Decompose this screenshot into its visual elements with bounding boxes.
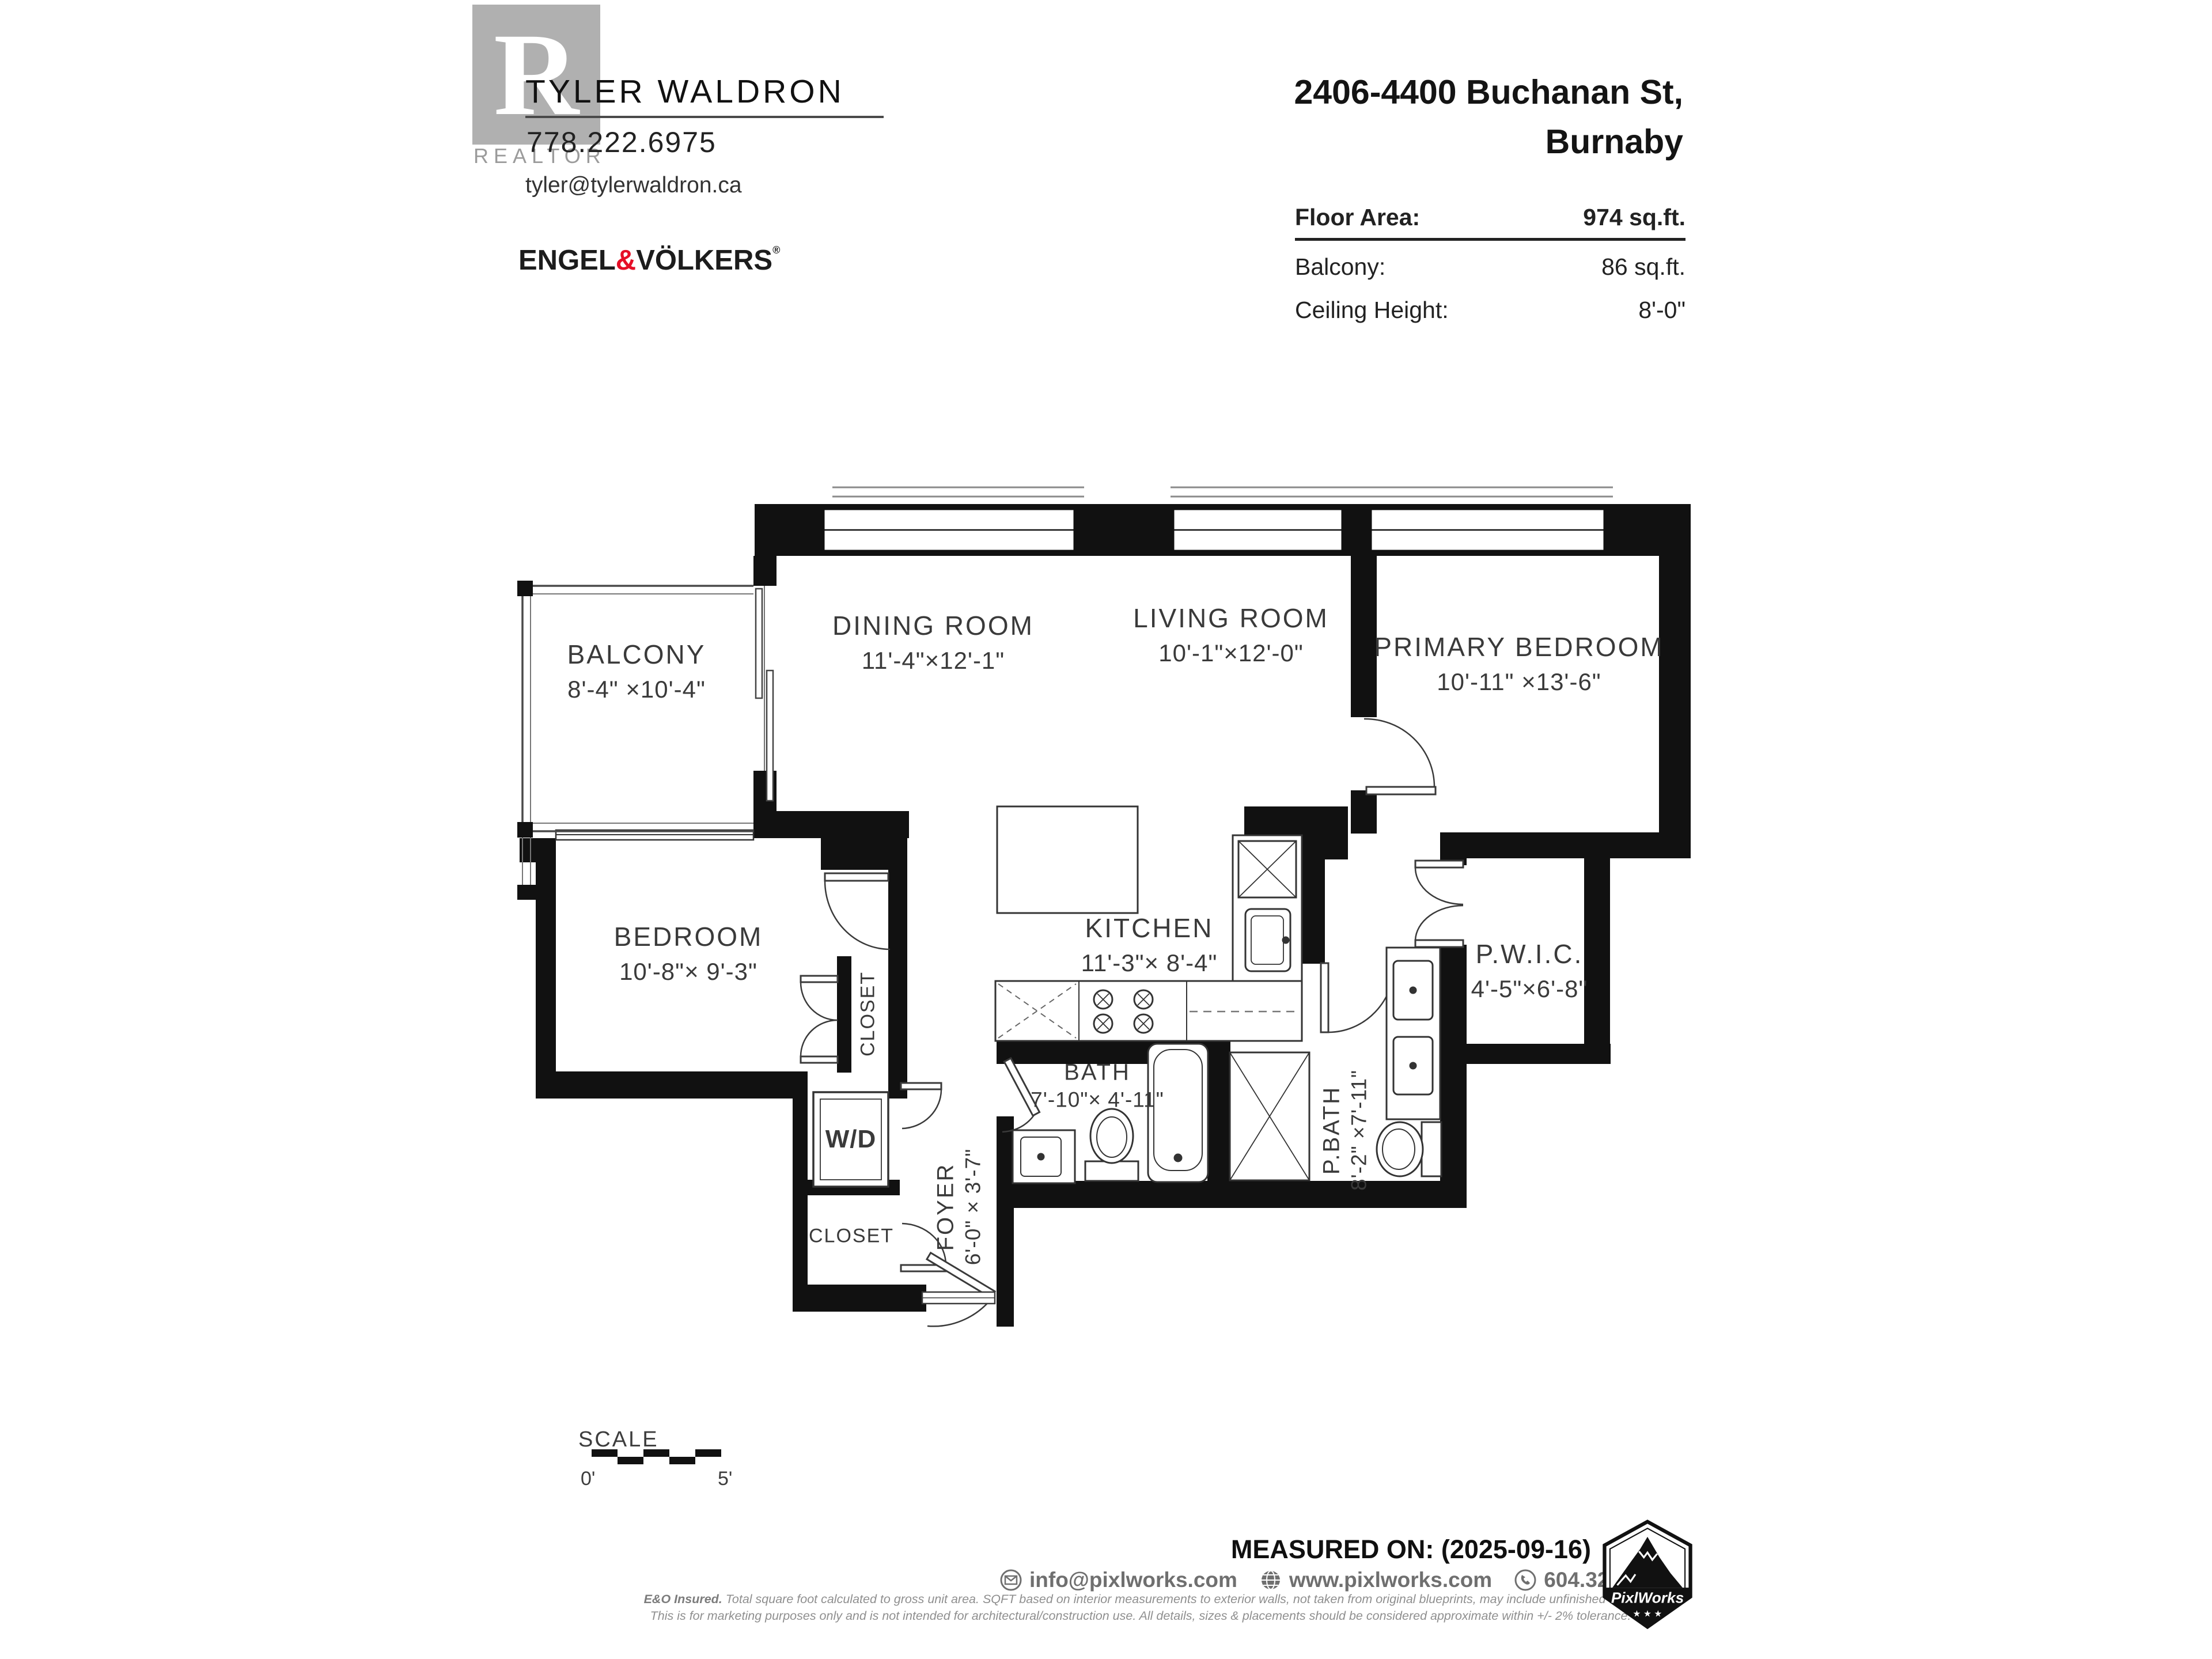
brokerage-registered: ® bbox=[772, 244, 780, 256]
room-label-bedroom: BEDROOM 10'-8"× 9'-3" bbox=[614, 921, 763, 986]
globe-icon bbox=[1259, 1569, 1282, 1592]
agent-email: tyler@tylerwaldron.ca bbox=[525, 173, 742, 198]
room-label-living: LIVING ROOM 10'-1"×12'-0" bbox=[1133, 603, 1329, 667]
room-label-pwic: P.W.I.C. 4'-5"×6'-8" bbox=[1471, 938, 1588, 1003]
scale-title: SCALE bbox=[578, 1427, 659, 1452]
address-line-1: 2406-4400 Buchanan St, bbox=[1210, 68, 1683, 118]
property-address: 2406-4400 Buchanan St, Burnaby bbox=[1210, 68, 1683, 166]
room-label-pbath: P.BATH 8'-2" ×7'-11" bbox=[1319, 1070, 1372, 1191]
floorplan-drawing bbox=[0, 0, 2212, 1659]
room-dims: 7'-10"× 4'-11" bbox=[1031, 1088, 1164, 1112]
room-name: DINING ROOM bbox=[832, 610, 1034, 641]
room-name: BEDROOM bbox=[614, 921, 763, 952]
brokerage-ampersand: & bbox=[616, 245, 636, 276]
room-label-primary-bedroom: PRIMARY BEDROOM 10'-11" ×13'-6" bbox=[1374, 631, 1664, 696]
room-dims: 10'-11" ×13'-6" bbox=[1374, 668, 1664, 696]
agent-name-rule bbox=[525, 116, 884, 118]
room-name: P.W.I.C. bbox=[1471, 938, 1588, 969]
room-dims: 8'-4" ×10'-4" bbox=[567, 676, 706, 703]
room-label-wd: W/D bbox=[825, 1125, 877, 1154]
room-dims: 6'-0" × 3'-7" bbox=[961, 1149, 986, 1266]
badge-text: PixlWorks bbox=[1611, 1589, 1684, 1606]
contact-website-text: www.pixlworks.com bbox=[1289, 1568, 1492, 1592]
room-dims: 11'-4"×12'-1" bbox=[832, 647, 1034, 675]
contact-email: info@pixlworks.com bbox=[999, 1568, 1237, 1592]
contact-email-text: info@pixlworks.com bbox=[1029, 1568, 1237, 1592]
room-name: P.BATH bbox=[1319, 1070, 1345, 1191]
disclaimer-text: Total square foot calculated to gross un… bbox=[722, 1592, 1638, 1606]
brokerage-volkers: VÖLKERS bbox=[636, 245, 772, 276]
address-line-2: Burnaby bbox=[1210, 118, 1683, 167]
stat-label: Balcony: bbox=[1295, 253, 1385, 281]
brokerage-logo: ENGEL&VÖLKERS® bbox=[518, 244, 780, 276]
room-label-dining: DINING ROOM 11'-4"×12'-1" bbox=[832, 610, 1034, 675]
measured-on: MEASURED ON: (2025-09-16) bbox=[1152, 1535, 1591, 1565]
room-name: BALCONY bbox=[567, 639, 706, 670]
room-label-kitchen: KITCHEN 11'-3"× 8'-4" bbox=[1081, 912, 1218, 977]
room-dims: 10'-1"×12'-0" bbox=[1133, 639, 1329, 667]
stat-label: Ceiling Height: bbox=[1295, 297, 1449, 324]
room-name: CLOSET bbox=[809, 1225, 894, 1248]
stat-label: Floor Area: bbox=[1295, 204, 1420, 231]
room-dims: 4'-5"×6'-8" bbox=[1471, 975, 1588, 1003]
kitchen-island bbox=[997, 806, 1138, 913]
contact-website: www.pixlworks.com bbox=[1259, 1568, 1492, 1592]
room-name: FOYER bbox=[933, 1149, 959, 1266]
room-name: W/D bbox=[825, 1125, 877, 1154]
stat-value: 974 sq.ft. bbox=[1583, 204, 1685, 231]
envelope-icon bbox=[999, 1569, 1022, 1592]
room-name: PRIMARY BEDROOM bbox=[1374, 631, 1664, 662]
stat-value: 8'-0" bbox=[1638, 297, 1685, 324]
floorplan-sheet: R REALTOR TYLER WALDRON 778.222.6975 tyl… bbox=[0, 0, 2212, 1659]
room-label-closet-bedroom: CLOSET bbox=[857, 971, 880, 1056]
disclaimer-line-2: This is for marketing purposes only and … bbox=[605, 1609, 1676, 1623]
room-label-bath: BATH 7'-10"× 4'-11" bbox=[1031, 1060, 1164, 1112]
scale-end: 5' bbox=[718, 1468, 732, 1490]
pixlworks-badge: PixlWorks ★ ★ ★ bbox=[1599, 1520, 1696, 1629]
stat-balcony: Balcony: 86 sq.ft. bbox=[1295, 241, 1685, 284]
stat-floor-area: Floor Area: 974 sq.ft. bbox=[1295, 200, 1685, 241]
brokerage-engel: ENGEL bbox=[518, 245, 616, 276]
badge-stars: ★ ★ ★ bbox=[1633, 1609, 1662, 1619]
room-dims: 10'-8"× 9'-3" bbox=[614, 958, 763, 986]
room-label-balcony: BALCONY 8'-4" ×10'-4" bbox=[567, 639, 706, 703]
room-dims: 8'-2" ×7'-11" bbox=[1347, 1070, 1372, 1191]
disclaimer-label: E&O Insured. bbox=[644, 1592, 722, 1606]
stat-ceiling-height: Ceiling Height: 8'-0" bbox=[1295, 284, 1685, 327]
phone-icon bbox=[1514, 1569, 1537, 1592]
stat-value: 86 sq.ft. bbox=[1601, 253, 1685, 281]
room-name: CLOSET bbox=[857, 971, 880, 1056]
roof-ledge-lines bbox=[832, 487, 1613, 497]
contact-row: info@pixlworks.com www.pixlworks.com 604… bbox=[999, 1568, 1675, 1592]
balcony-rail bbox=[522, 586, 753, 886]
room-name: KITCHEN bbox=[1081, 912, 1218, 944]
room-label-foyer: FOYER 6'-0" × 3'-7" bbox=[933, 1149, 986, 1266]
agent-phone: 778.222.6975 bbox=[527, 126, 717, 159]
room-name: LIVING ROOM bbox=[1133, 603, 1329, 634]
scale-start: 0' bbox=[581, 1468, 595, 1490]
toilet-tank bbox=[1085, 1161, 1138, 1181]
agent-name: TYLER WALDRON bbox=[525, 73, 844, 111]
disclaimer-line-1: E&O Insured. Total square foot calculate… bbox=[605, 1592, 1676, 1607]
room-label-closet-foyer: CLOSET bbox=[809, 1225, 894, 1248]
room-name: BATH bbox=[1031, 1060, 1164, 1086]
room-dims: 11'-3"× 8'-4" bbox=[1081, 949, 1218, 977]
balcony-sliding-door bbox=[756, 586, 773, 801]
pbath-toilet-tank bbox=[1422, 1122, 1441, 1176]
property-stats: Floor Area: 974 sq.ft. Balcony: 86 sq.ft… bbox=[1295, 200, 1685, 327]
